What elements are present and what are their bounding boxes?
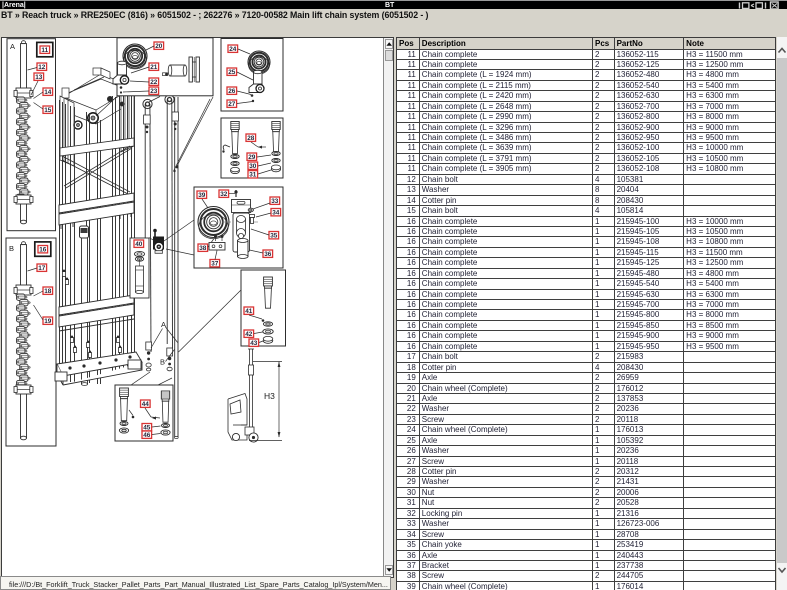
svg-text:30: 30 — [249, 163, 257, 170]
svg-text:11: 11 — [41, 47, 48, 54]
svg-text:A: A — [161, 320, 166, 329]
svg-text:12: 12 — [38, 64, 46, 71]
svg-text:17: 17 — [38, 265, 46, 272]
svg-text:B: B — [9, 244, 14, 253]
svg-text:20: 20 — [155, 43, 163, 50]
svg-text:42: 42 — [245, 331, 253, 338]
svg-text:41: 41 — [245, 308, 253, 315]
svg-text:33: 33 — [271, 198, 279, 205]
svg-text:21: 21 — [150, 64, 158, 71]
svg-text:22: 22 — [150, 79, 158, 86]
svg-text:25: 25 — [228, 69, 236, 76]
svg-text:32: 32 — [220, 191, 228, 198]
svg-text:23: 23 — [150, 88, 158, 95]
svg-text:24: 24 — [229, 46, 237, 53]
svg-text:46: 46 — [143, 432, 151, 439]
svg-text:15: 15 — [44, 107, 52, 114]
svg-text:43: 43 — [250, 340, 258, 347]
svg-text:35: 35 — [270, 233, 278, 240]
svg-text:44: 44 — [142, 401, 150, 408]
svg-text:H3: H3 — [264, 391, 275, 401]
svg-text:39: 39 — [198, 192, 206, 199]
svg-text:19: 19 — [44, 318, 52, 325]
svg-text:27: 27 — [228, 101, 236, 108]
svg-text:14: 14 — [44, 89, 52, 96]
svg-text:A: A — [10, 42, 15, 51]
svg-text:31: 31 — [249, 172, 257, 179]
svg-text:18: 18 — [44, 288, 52, 295]
svg-text:28: 28 — [247, 135, 255, 142]
svg-text:B: B — [160, 358, 165, 367]
svg-text:36: 36 — [264, 251, 272, 258]
svg-text:26: 26 — [228, 88, 236, 95]
svg-text:38: 38 — [199, 245, 207, 252]
svg-text:29: 29 — [248, 154, 256, 161]
svg-text:34: 34 — [272, 210, 280, 217]
svg-text:37: 37 — [211, 261, 219, 268]
svg-text:40: 40 — [135, 241, 143, 248]
svg-text:13: 13 — [35, 74, 43, 81]
svg-text:16: 16 — [39, 247, 47, 254]
